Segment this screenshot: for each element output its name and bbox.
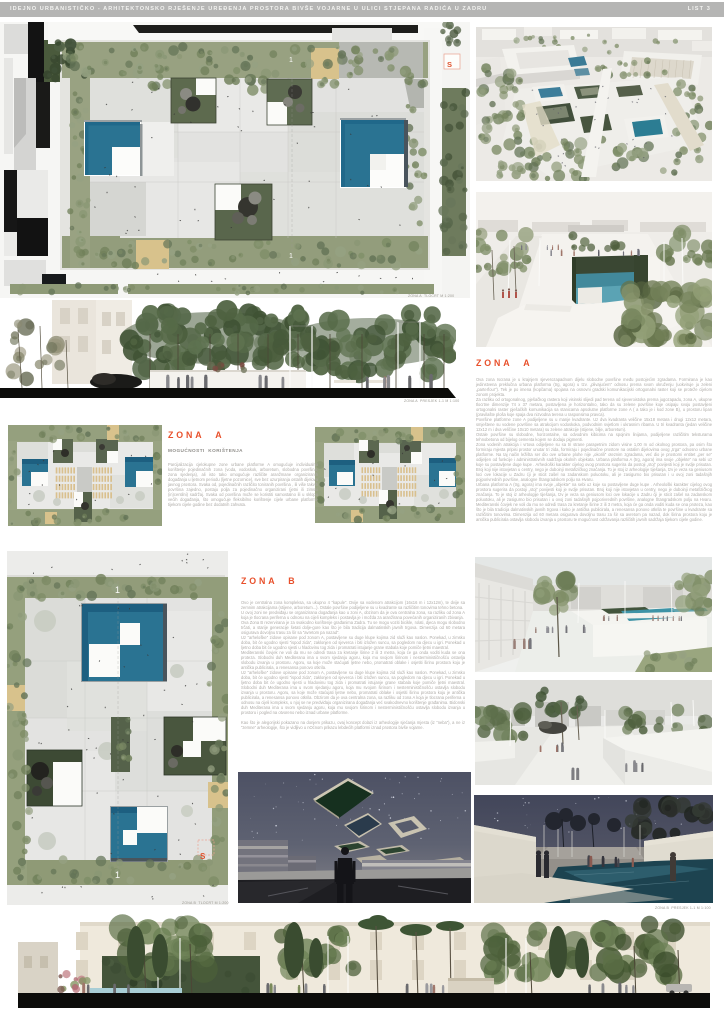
svg-text:1: 1 (289, 253, 293, 260)
svg-text:1: 1 (115, 585, 120, 595)
svg-text:S: S (447, 60, 452, 69)
svg-text:1: 1 (289, 57, 293, 64)
svg-text:1: 1 (115, 870, 120, 880)
svg-text:S: S (200, 852, 206, 861)
